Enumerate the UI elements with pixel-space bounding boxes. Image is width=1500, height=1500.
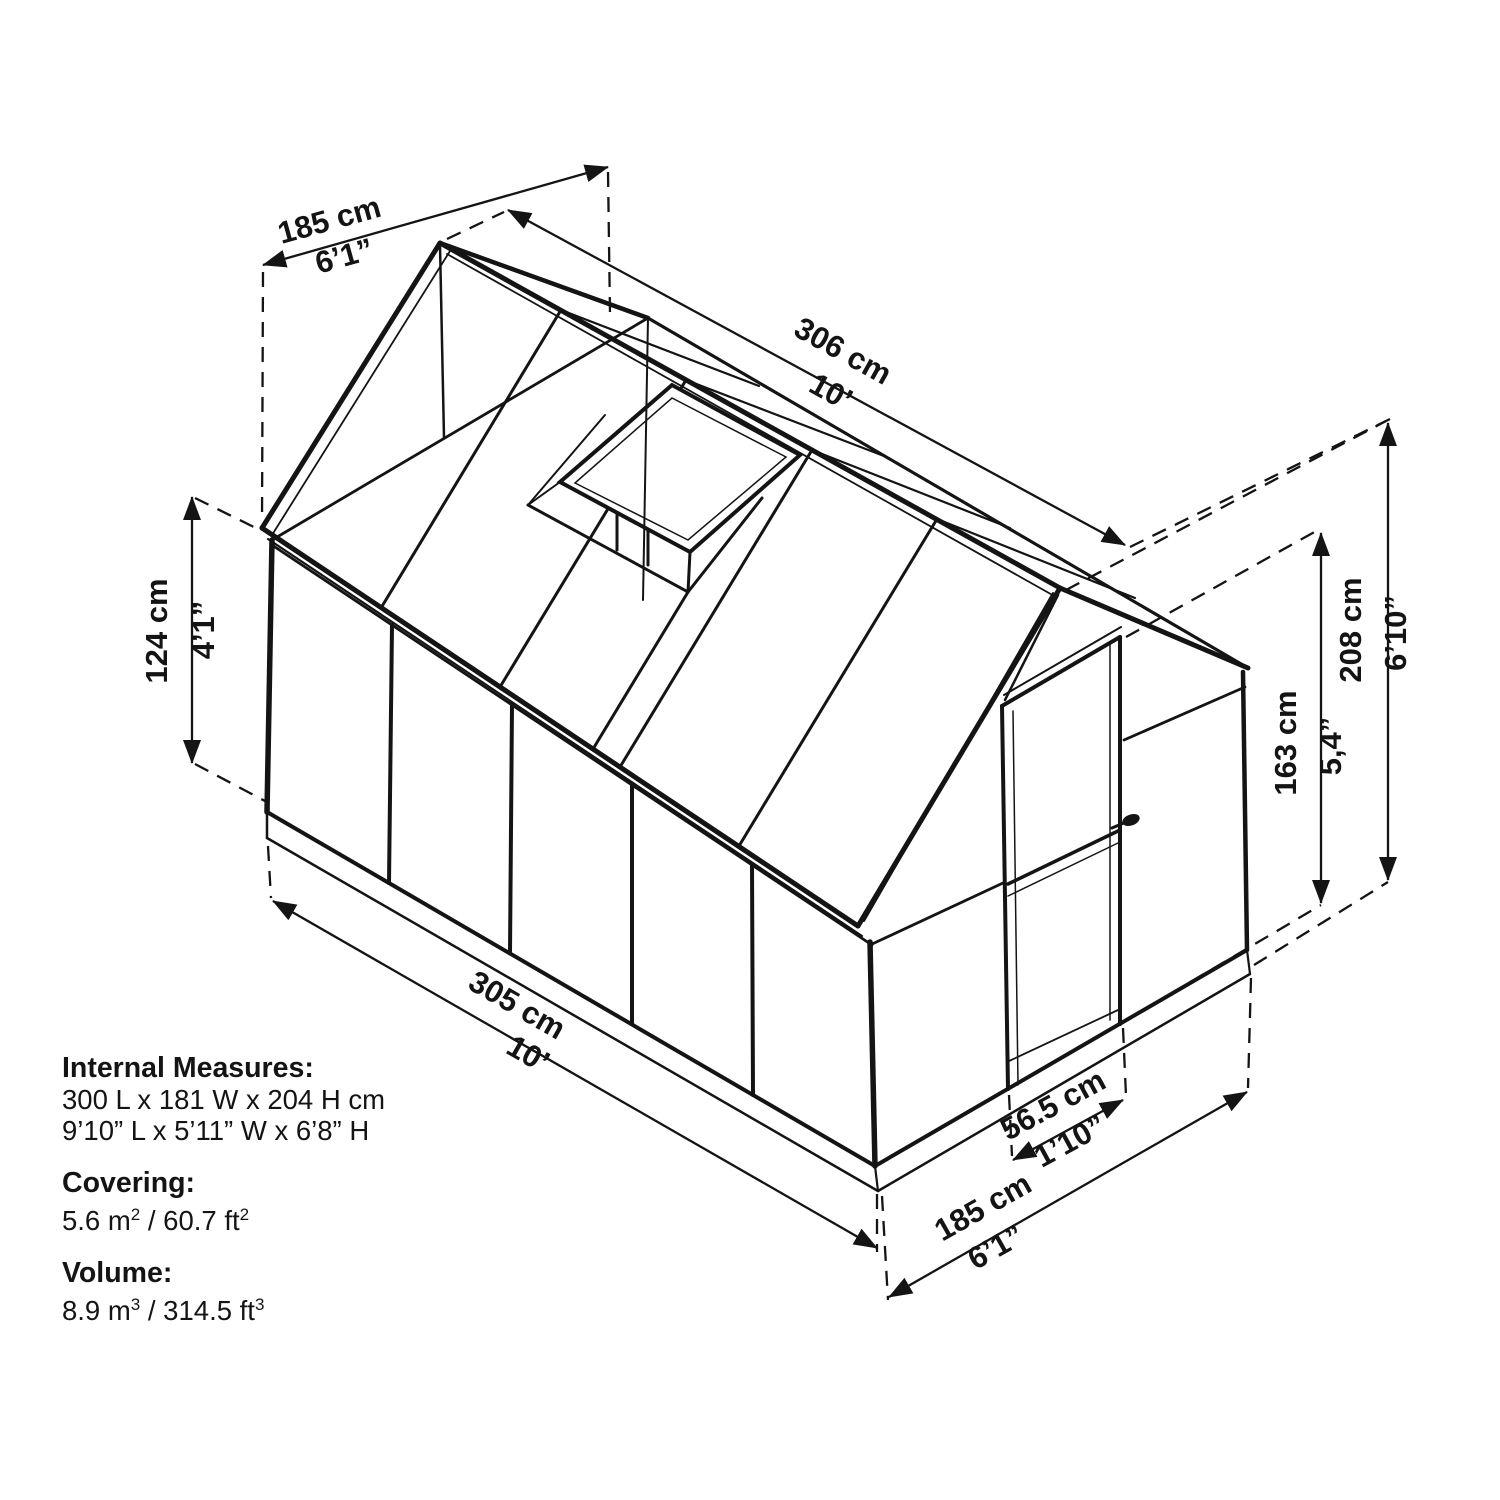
internal-measures-label: Internal Measures: xyxy=(62,1052,492,1084)
vent-prop-arm xyxy=(688,552,690,592)
dim-door-height: 163 cm 5,4” xyxy=(1126,530,1348,1020)
dim-total-height-imperial: 6’10” xyxy=(1378,595,1413,671)
wall-mullion xyxy=(752,865,753,1095)
dim-total-height-metric: 208 cm xyxy=(1333,577,1368,682)
wall-mullion xyxy=(389,625,392,883)
wall-mullion xyxy=(510,705,512,953)
gable-brace xyxy=(1005,595,1058,700)
door-left-jamb xyxy=(1002,706,1008,1089)
dim-door-height-metric: 163 cm xyxy=(1268,690,1303,795)
door-handle[interactable] xyxy=(1121,812,1142,828)
covering-label: Covering: xyxy=(62,1167,492,1199)
left-gable-front-roof-edge xyxy=(262,243,440,528)
eave-rail-left-of-door xyxy=(870,883,1003,945)
greenhouse-structure xyxy=(262,243,1250,1191)
front-wall-top xyxy=(272,545,872,945)
volume-value: 8.9 m3 / 314.5 ft3 xyxy=(62,1289,492,1326)
roof-vent-window xyxy=(528,385,800,592)
left-gable-chord xyxy=(272,318,648,540)
dim-door-height-imperial: 5,4” xyxy=(1313,717,1348,776)
back-right-corner-post xyxy=(1243,672,1247,950)
volume-label: Volume: xyxy=(62,1257,492,1289)
front-left-corner-post xyxy=(267,540,272,812)
covering-value: 5.6 m2 / 60.7 ft2 xyxy=(62,1199,492,1236)
dim-eave-height-metric: 124 cm xyxy=(139,578,174,683)
dim-eave-height: 124 cm 4’1” xyxy=(139,497,265,801)
internal-measures-metric: 300 L x 181 W x 204 H cm xyxy=(62,1084,492,1115)
left-gable-center-post xyxy=(440,245,444,438)
dim-eave-height-imperial: 4’1” xyxy=(186,601,221,660)
door[interactable] xyxy=(1002,627,1141,1089)
front-right-corner-post xyxy=(870,942,875,1166)
ridge-beam xyxy=(440,243,1060,588)
rail-right-of-door xyxy=(1124,687,1245,740)
left-gable-back-roof-edge xyxy=(440,243,648,318)
internal-measures-imperial: 9’10” L x 5’11” W x 6’8” H xyxy=(62,1115,492,1146)
spec-text-block: Internal Measures: 300 L x 181 W x 204 H… xyxy=(62,1052,492,1326)
dim-door-width: 56.5 cm 1’10” xyxy=(995,1028,1126,1174)
greenhouse-dimension-diagram: 185 cm 6’1” 306 cm 10’ 124 cm 4’1” 163 c… xyxy=(0,0,1500,1500)
door-mid-rail xyxy=(1008,831,1118,884)
